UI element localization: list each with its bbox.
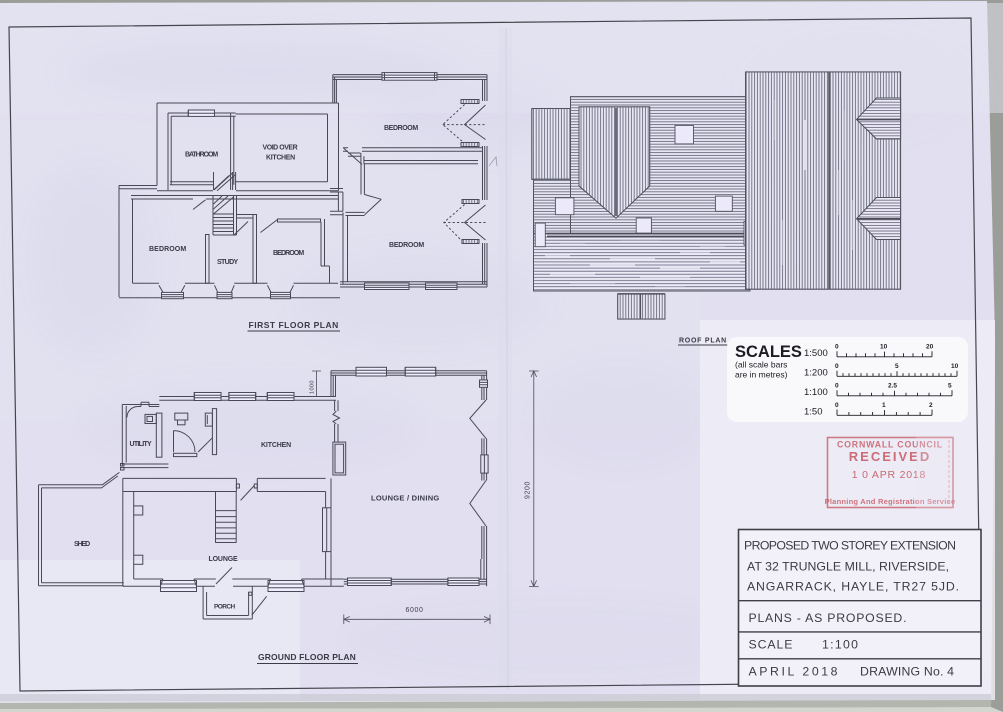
svg-text:UTILITY: UTILITY — [130, 441, 153, 448]
svg-text:20: 20 — [926, 344, 934, 351]
svg-text:GROUND FLOOR PLAN: GROUND FLOOR PLAN — [258, 652, 357, 662]
svg-text:0: 0 — [835, 363, 839, 370]
svg-text:KITCHEN: KITCHEN — [261, 442, 292, 449]
svg-text:1000: 1000 — [310, 380, 316, 394]
svg-text:BEDROOM: BEDROOM — [273, 250, 305, 257]
svg-text:PORCH: PORCH — [214, 604, 236, 611]
svg-text:ROOF PLAN: ROOF PLAN — [679, 338, 727, 345]
svg-text:LOUNGE / DINING: LOUNGE / DINING — [371, 494, 440, 503]
svg-text:BEDROOM: BEDROOM — [149, 246, 187, 253]
svg-text:6000: 6000 — [406, 607, 424, 614]
svg-text:SCALES: SCALES — [735, 343, 802, 361]
svg-text:1:100: 1:100 — [822, 638, 859, 652]
svg-text:1 0 APR 2018: 1 0 APR 2018 — [852, 469, 926, 481]
svg-text:1:50: 1:50 — [804, 407, 823, 418]
svg-text:BEDROOM: BEDROOM — [389, 242, 425, 249]
svg-text:BEDROOM: BEDROOM — [384, 125, 419, 132]
svg-text:PLANS - AS PROPOSED.: PLANS - AS PROPOSED. — [749, 611, 908, 625]
svg-text:DRAWING No. 4: DRAWING No. 4 — [860, 665, 955, 679]
svg-text:APRIL 2018: APRIL 2018 — [749, 665, 839, 679]
svg-text:1:100: 1:100 — [804, 387, 828, 398]
svg-text:0: 0 — [835, 383, 839, 390]
svg-text:AT 32 TRUNGLE MILL, RIVERSIDE,: AT 32 TRUNGLE MILL, RIVERSIDE, — [747, 560, 950, 574]
svg-text:are in metres): are in metres) — [735, 370, 788, 380]
svg-text:SHED: SHED — [74, 541, 91, 548]
svg-text:5: 5 — [895, 363, 899, 370]
svg-text:1:500: 1:500 — [804, 348, 828, 359]
svg-text:STUDY: STUDY — [217, 259, 239, 266]
svg-text:VOID OVER: VOID OVER — [263, 145, 299, 152]
svg-text:FIRST FLOOR PLAN: FIRST FLOOR PLAN — [249, 320, 340, 330]
svg-text:5: 5 — [948, 383, 952, 390]
svg-text:2.5: 2.5 — [888, 383, 897, 390]
svg-text:LOUNGE: LOUNGE — [209, 556, 239, 563]
svg-text:0: 0 — [835, 344, 839, 351]
svg-text:0: 0 — [835, 402, 839, 409]
svg-text:BATHROOM: BATHROOM — [185, 152, 219, 159]
svg-text:10: 10 — [880, 344, 888, 351]
svg-text:2: 2 — [929, 402, 933, 409]
svg-text:10: 10 — [951, 363, 959, 370]
svg-text:1: 1 — [882, 402, 886, 409]
svg-text:(all scale bars: (all scale bars — [735, 360, 787, 370]
svg-text:9200: 9200 — [525, 481, 532, 499]
svg-text:ANGARRACK, HAYLE, TR27 5JD.: ANGARRACK, HAYLE, TR27 5JD. — [747, 580, 960, 594]
svg-text:PROPOSED TWO STOREY EXTENSION: PROPOSED TWO STOREY EXTENSION — [744, 539, 957, 553]
svg-text:KITCHEN: KITCHEN — [266, 155, 296, 162]
svg-text:1:200: 1:200 — [804, 368, 828, 379]
svg-text:SCALE: SCALE — [749, 638, 794, 652]
